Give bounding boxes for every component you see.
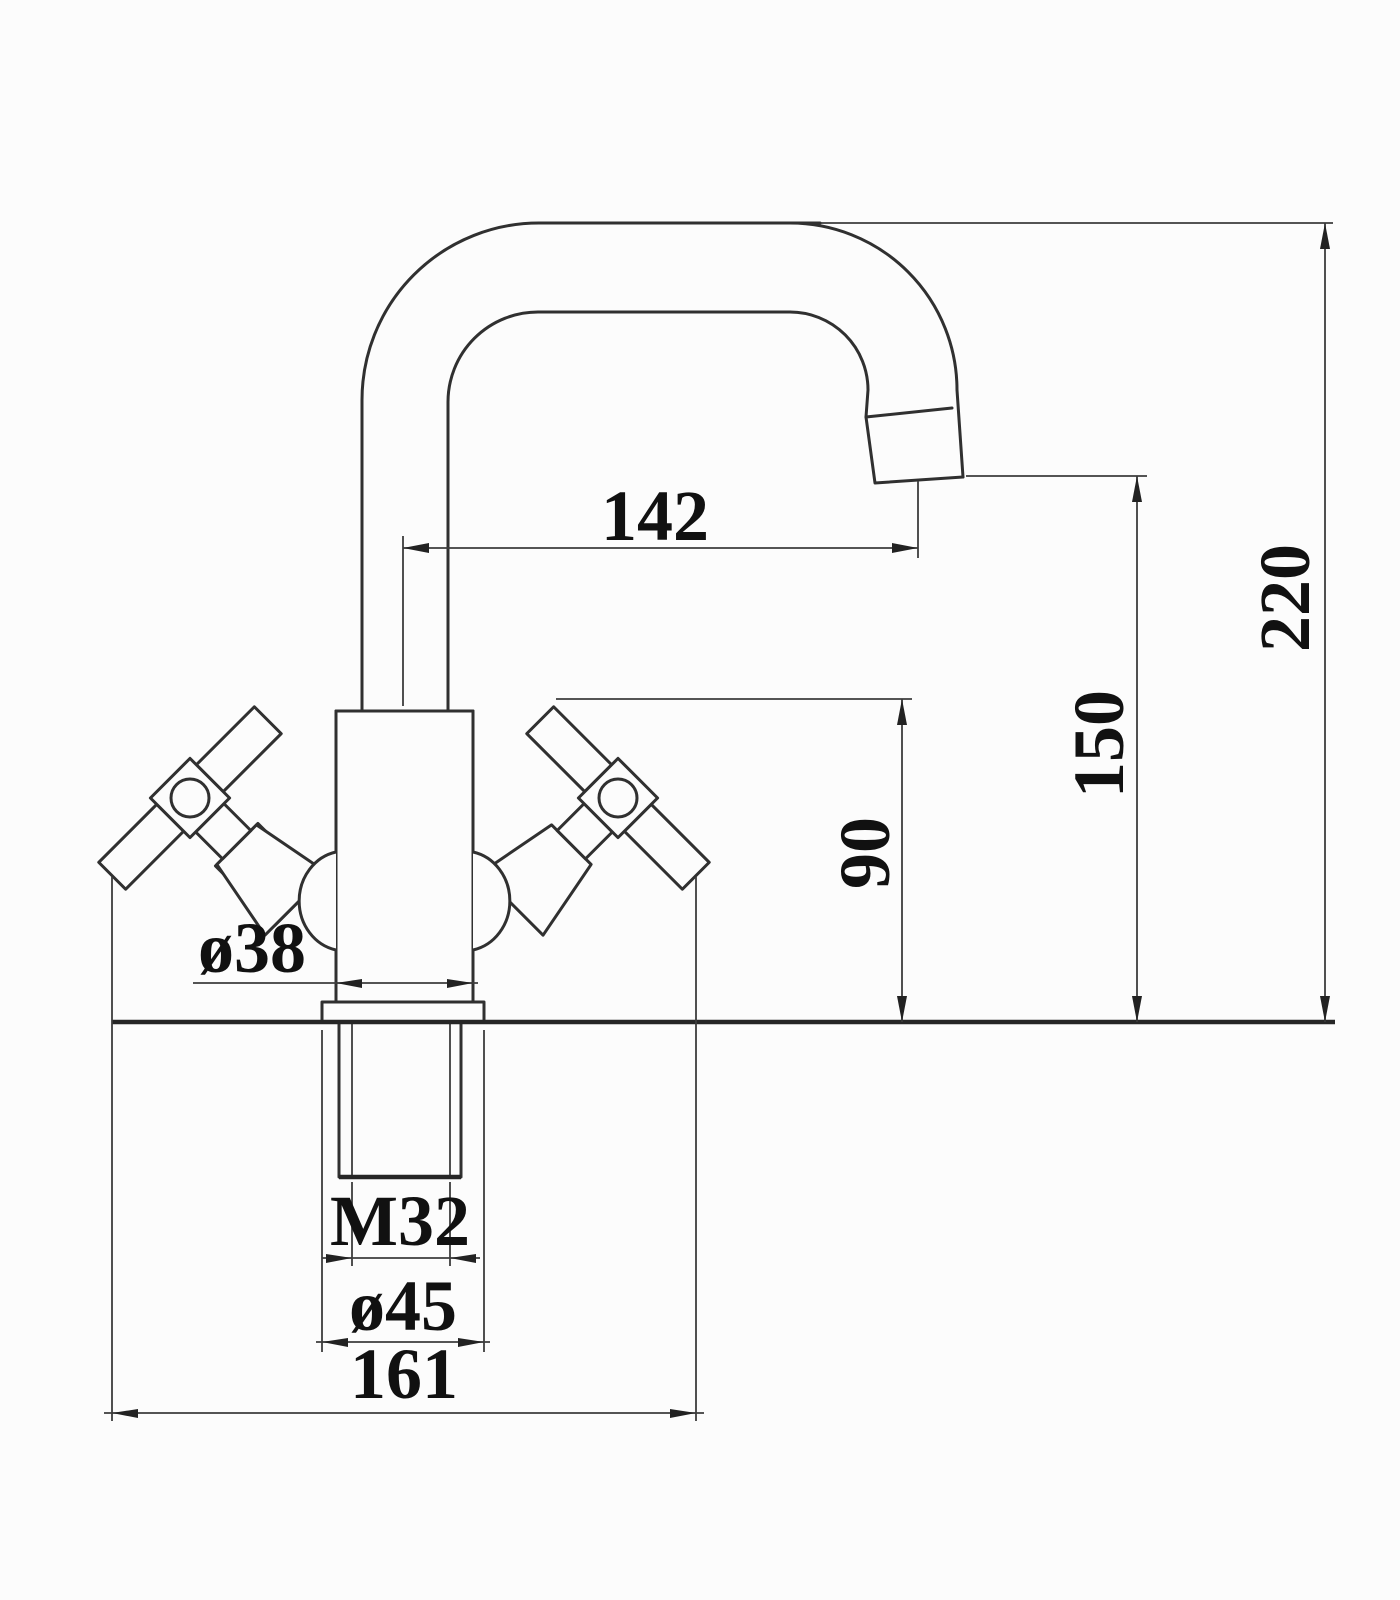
spout-bend-inner — [790, 312, 868, 417]
arrowhead — [897, 699, 907, 725]
arrowhead — [447, 979, 473, 988]
aerator-outlet — [866, 417, 963, 483]
arrowhead — [892, 543, 918, 553]
spout-bend-outer — [790, 223, 963, 477]
dimension-label: 150 — [1059, 690, 1139, 798]
dimension-label: 161 — [350, 1334, 458, 1414]
arrowhead — [1132, 476, 1142, 502]
arrowhead — [1320, 223, 1330, 249]
dimension-handle-height: 90 — [556, 699, 912, 1022]
arrowhead — [670, 1409, 696, 1418]
spout-outer-edge — [362, 223, 820, 711]
arrowhead — [336, 979, 362, 988]
dimension-label: 142 — [601, 476, 709, 556]
technical-drawing-page: 142 220 150 90 ø38 M32 — [0, 0, 1400, 1600]
dimension-outlet-height: 150 — [966, 476, 1147, 1022]
base-flange — [322, 1002, 484, 1022]
dimension-label: 220 — [1245, 544, 1325, 652]
dimension-spout-reach: 142 — [403, 476, 918, 706]
dimension-label: M32 — [330, 1181, 470, 1261]
dimension-overall-height: 220 — [1245, 223, 1330, 1022]
arrowhead — [897, 996, 907, 1022]
threaded-shank — [339, 1022, 461, 1177]
arrowhead — [1320, 996, 1330, 1022]
arrowhead — [458, 1338, 484, 1347]
arrowhead — [112, 1409, 138, 1418]
arrowhead — [403, 543, 429, 553]
dimension-label: 90 — [825, 817, 905, 889]
right-handle — [434, 700, 715, 981]
faucet-technical-drawing: 142 220 150 90 ø38 M32 — [0, 0, 1400, 1600]
aerator-joint-line — [866, 408, 952, 417]
dimension-label: ø38 — [198, 908, 306, 988]
faucet-body — [336, 711, 473, 1002]
faucet-spout — [362, 223, 1333, 711]
dimension-base-spread: 161 — [104, 1334, 704, 1418]
arrowhead — [322, 1338, 348, 1347]
dimension-thread-size: M32 — [322, 1181, 480, 1266]
arrowhead — [1132, 996, 1142, 1022]
